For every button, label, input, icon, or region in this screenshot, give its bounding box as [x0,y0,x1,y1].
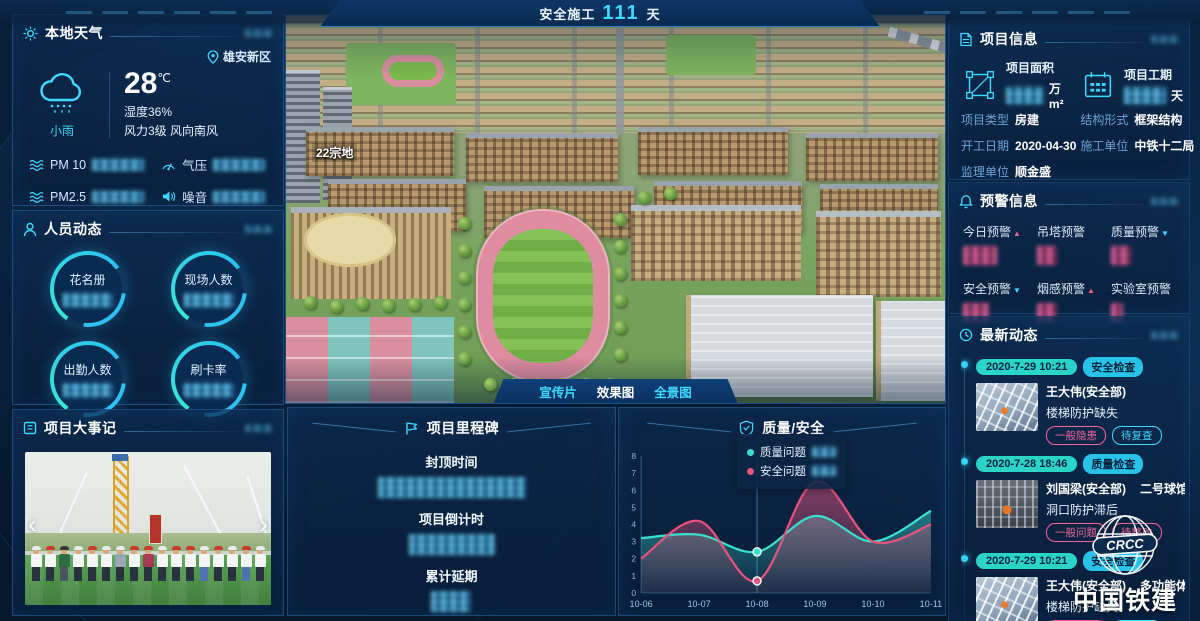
warning-item-吊塔预警: 吊塔预警 [1037,223,1111,265]
milestone-item: 项目倒计时 [409,509,495,555]
tree [458,217,471,230]
warnings-panel-title: 预警信息 [980,191,1038,211]
update-tag: 一般隐患 [1046,426,1106,445]
redacted-header-text [245,29,273,37]
wind: 风力3级 风向南风 [124,122,218,141]
tree [458,352,471,365]
project-duration-label: 项目工期 [1124,66,1183,83]
tree [638,191,651,204]
field-value: 顺金盛 [1015,165,1051,179]
info-field: 结构形式框架结构 [1080,111,1194,128]
location-name: 雄安新区 [223,48,271,65]
ring-label: 现场人数 [184,271,232,288]
person-figure [44,546,56,581]
tree [458,244,471,257]
warning-label: 实验室预警 [1111,280,1185,297]
update-date: 2020-7-29 10:21 [976,359,1077,375]
redacted-value [812,447,836,457]
temperature-unit: ℃ [157,71,170,85]
warning-label: 今日预警▲ [963,223,1037,240]
info-field: 开工日期2020-04-30 [961,137,1076,154]
tree [614,321,627,334]
redacted-value [213,159,265,171]
trend-up-icon: ▲ [1087,286,1095,295]
update-issue: 楼梯防护缺失 [1046,404,1162,421]
update-photo-thumbnail[interactable] [976,383,1038,431]
redacted-value [409,534,495,555]
crcc-globe-icon: CRCC [1088,512,1162,582]
pm-icon [29,190,44,203]
personnel-panel: 人员动态 花名册现场人数出勤人数刷卡率 [12,210,284,405]
tree [382,299,395,312]
milestone-panel-title: 项目里程碑 [427,418,500,438]
tree [330,300,343,313]
milestone-label: 封顶时间 [425,452,477,471]
project-area-stat: 项目面积 万m² [961,59,1073,111]
update-type-badge: 质量检查 [1083,454,1143,474]
alarm-bell-icon [959,194,973,209]
person-figure [86,546,98,581]
project-area-label: 项目面积 [1006,59,1073,76]
redacted-value [963,246,997,265]
top-bar-decoration-right [924,11,1134,14]
weather-panel: 本地天气 雄安新区 小雨 28℃ 湿度36% 风力3级 风向南风 [12,14,284,206]
redacted-value [378,477,526,498]
person-figure [254,546,266,581]
legend-dot [747,468,754,475]
metric-label: 气压 [182,155,207,174]
legend-label: 质量问题 [760,444,806,460]
milestone-label: 累计延期 [425,566,477,585]
tooltip-series-row: 安全问题 [747,463,836,479]
person-figure [128,546,140,581]
quality-safety-panel: 质量/安全 01234567810-0610-0710-0810-0910-10… [618,407,946,616]
milestone-item: 累计延期 [425,566,477,612]
metric-label: PM2.5 [50,190,86,204]
update-location: 二号球馆 [1140,482,1185,496]
redacted-value [1037,246,1057,265]
update-date: 2020-7-28 18:46 [976,456,1077,472]
basketball-courts [286,317,454,403]
weather-metrics: PM 10气压PM2.5噪音 [29,155,273,206]
updates-panel-title: 最新动态 [980,325,1038,345]
warning-label: 吊塔预警 [1037,223,1111,240]
apartment-block [806,133,938,181]
document-icon [959,32,973,47]
small-stadium [382,55,444,87]
project-events-panel: 项目大事记 ‹ › [12,409,284,616]
person-figure [226,546,238,581]
pressure-icon [161,158,176,171]
school-building-right [816,211,941,297]
person-figure [142,546,154,581]
crcc-brand-text: CRCC [1106,536,1145,554]
notebook-icon [23,421,37,435]
person-figure [212,546,224,581]
warnings-panel: 预警信息 今日预警▲吊塔预警质量预警▼安全预警▼烟感预警▲实验室预警 [948,182,1190,314]
redacted-value [184,293,234,307]
field-label: 施工单位 [1080,139,1128,153]
gymnasium-roof [876,301,946,401]
top-bar-decoration-left [66,11,276,14]
svg-text:0: 0 [631,588,636,598]
svg-text:10-09: 10-09 [803,599,826,609]
tree [614,213,627,226]
svg-text:7: 7 [631,468,636,478]
update-photo-thumbnail[interactable] [976,480,1038,528]
svg-text:10-07: 10-07 [688,599,711,609]
tree [434,296,447,309]
field-value: 房建 [1015,113,1039,127]
update-type-badge: 安全检查 [1083,357,1143,377]
milestone-label: 项目倒计时 [419,509,484,528]
area-icon [961,66,999,104]
ring-label: 刷卡率 [190,361,226,378]
person-figure [156,546,168,581]
field-value: 框架结构 [1134,113,1182,127]
redacted-header-text [245,225,273,233]
milestone-photo: ‹ › [25,452,271,605]
person-figure [100,546,112,581]
person-figure [170,546,182,581]
field-label: 结构形式 [1080,113,1128,127]
redacted-header-text [1151,331,1179,339]
milestone-panel: 项目里程碑 封顶时间项目倒计时累计延期 [287,407,616,616]
svg-text:10-11: 10-11 [920,599,942,609]
person-figure [184,546,196,581]
safety-days-banner: 安全施工 111 天 [320,0,880,27]
project-info-fields: 项目类型房建结构形式框架结构开工日期2020-04-30施工单位中铁十二局监理单… [961,111,1185,180]
ring-label: 出勤人数 [63,361,111,378]
safety-days-suffix: 天 [647,4,661,23]
field-label: 监理单位 [961,165,1009,179]
calendar-icon [1079,66,1117,104]
svg-text:6: 6 [631,485,636,495]
location-badge: 雄安新区 [207,48,271,65]
dashboard: 安全施工 111 天 本地天气 雄安新区 小雨 [0,0,1200,621]
weather-condition: 小雨 [29,122,95,139]
legend-label: 安全问题 [760,463,806,479]
redacted-value [184,383,234,397]
tree [614,240,627,253]
soccer-field [493,229,593,363]
person-figure [30,546,42,581]
carousel-prev-arrow[interactable]: ‹ [28,511,37,537]
view-button-全景图[interactable]: 全景图 [654,382,692,401]
update-person: 王大伟(安全部) [1046,385,1126,399]
personnel-rings: 花名册现场人数出勤人数刷卡率 [27,251,269,396]
field-label: 开工日期 [961,139,1009,153]
sun-icon [23,26,38,41]
info-field: 项目类型房建 [961,111,1076,128]
update-person: 刘国梁(安全部) [1046,482,1126,496]
redacted-value [812,466,836,476]
safety-days-count: 111 [602,3,639,23]
warning-item-今日预警: 今日预警▲ [963,223,1037,265]
person-figure [114,546,126,581]
redacted-header-text [245,424,273,432]
tree [614,348,627,361]
svg-text:10-08: 10-08 [745,599,768,609]
site-render-view: 22宗地 宣传片效果图全景图 [285,14,946,404]
redacted-value [213,191,265,203]
tree [614,267,627,280]
weather-summary: 小雨 28℃ 湿度36% 风力3级 风向南风 [29,69,218,141]
apartment-block [466,133,618,182]
warning-label: 质量预警▼ [1111,223,1185,240]
trend-down-icon: ▼ [1161,229,1169,238]
redacted-header-text [1151,35,1179,43]
redacted-value [63,383,113,397]
warning-label: 安全预警▼ [963,280,1037,297]
weather-metric: 气压 [161,155,273,174]
tree [408,298,421,311]
personnel-ring-刷卡率[interactable]: 刷卡率 [171,341,247,417]
redacted-value [92,159,144,171]
personnel-panel-title: 人员动态 [44,219,102,239]
project-duration-unit: 天 [1171,87,1183,104]
svg-text:3: 3 [631,537,636,547]
metric-label: PM 10 [50,158,86,172]
milestone-item: 封顶时间 [378,452,526,498]
milestone-stats: 封顶时间项目倒计时累计延期 [288,452,615,612]
personnel-ring-出勤人数[interactable]: 出勤人数 [50,341,126,417]
update-tag: 待复查 [1112,426,1162,445]
field-label: 项目类型 [961,113,1009,127]
redacted-value [1006,87,1044,104]
update-item[interactable]: 2020-7-29 10:21安全检查王大伟(安全部)楼梯防护缺失一般隐患待复查 [961,357,1185,445]
chart-tooltip: 质量问题安全问题 [737,434,846,489]
project-info-title: 项目信息 [980,29,1038,49]
top-bar: 安全施工 111 天 [0,0,1200,27]
tree [356,297,369,310]
temperature-value: 28 [124,67,157,100]
clock-icon [959,328,973,342]
plot-label: 22宗地 [312,143,357,162]
personnel-ring-花名册[interactable]: 花名册 [50,251,126,327]
person-icon [23,222,37,237]
safety-days-prefix: 安全施工 [539,4,595,23]
trend-down-icon: ▼ [1013,286,1021,295]
svg-text:10-06: 10-06 [630,599,653,609]
warnings-grid: 今日预警▲吊塔预警质量预警▼安全预警▼烟感预警▲实验室预警 [963,223,1185,322]
group-photo-people [25,546,271,581]
field-value: 2020-04-30 [1015,139,1076,153]
redacted-value [92,191,144,203]
view-switcher: 宣传片效果图全景图 [494,379,738,403]
project-area-unit: 万m² [1049,80,1073,111]
tooltip-series-row: 质量问题 [747,444,836,460]
tree [458,298,471,311]
running-track [476,209,610,383]
view-button-宣传片[interactable]: 宣传片 [539,382,577,401]
noise-icon [161,190,176,203]
tree [614,294,627,307]
info-field: 监理单位顺金盛 [961,163,1076,180]
weather-metric: PM2.5 [29,187,161,206]
events-panel-title: 项目大事记 [44,418,117,438]
person-figure [58,546,70,581]
info-field: 施工单位中铁十二局 [1080,137,1194,154]
sand-playground [304,213,396,267]
tree [304,296,317,309]
tree [664,187,677,200]
legend-dot [747,449,754,456]
crcc-company-name: 中国铁建 [1058,581,1192,617]
person-figure [72,546,84,581]
metric-label: 噪音 [182,187,207,206]
weather-metric: 噪音 [161,187,273,206]
svg-text:2: 2 [631,554,636,564]
cloud-rain-icon [36,72,88,114]
location-pin-icon [207,50,219,64]
update-photo-thumbnail[interactable] [976,577,1038,621]
carousel-next-arrow[interactable]: › [259,511,268,537]
view-button-效果图[interactable]: 效果图 [597,382,635,401]
svg-text:8: 8 [631,451,636,461]
person-figure [198,546,210,581]
svg-text:4: 4 [631,519,636,529]
project-duration-stat: 项目工期 天 [1079,59,1183,111]
warning-item-质量预警: 质量预警▼ [1111,223,1185,265]
redacted-value [63,293,113,307]
svg-text:5: 5 [631,502,636,512]
crcc-logo: CRCC 中国铁建 [1058,512,1192,617]
warning-label: 烟感预警▲ [1037,280,1111,297]
flag-icon [404,421,419,436]
redacted-value [1111,246,1131,265]
humidity: 湿度36% [124,103,218,122]
tree [458,271,471,284]
redacted-value [431,591,471,612]
apartment-block [638,127,788,175]
pm-icon [29,158,44,171]
svg-text:10-10: 10-10 [861,599,884,609]
trend-up-icon: ▲ [1013,229,1021,238]
personnel-ring-现场人数[interactable]: 现场人数 [171,251,247,327]
person-figure [240,546,252,581]
tree [484,378,497,391]
project-info-panel: 项目信息 项目面积 万m² 项目工期 天 [948,20,1190,180]
tree [458,325,471,338]
svg-text:1: 1 [631,571,636,581]
redacted-header-text [1151,197,1179,205]
school-building-right [631,205,801,281]
weather-metric: PM 10 [29,155,161,174]
field-value: 中铁十二局 [1134,139,1194,153]
ring-label: 花名册 [69,271,105,288]
redacted-value [1124,87,1166,104]
